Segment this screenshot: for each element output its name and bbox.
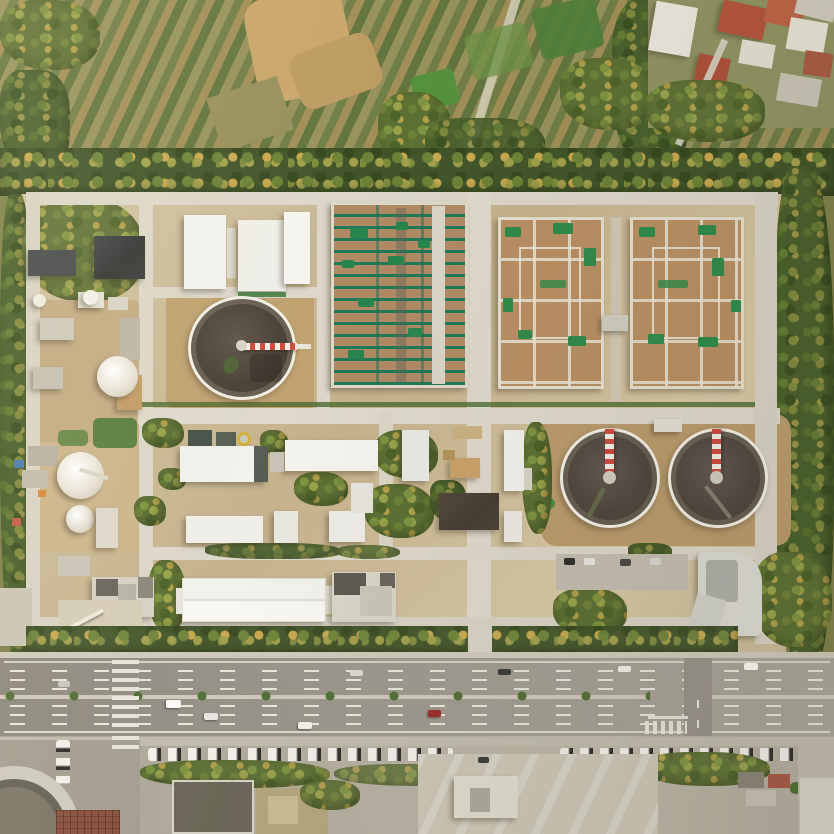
left-shed-row-b <box>22 470 48 488</box>
mw-green-2 <box>553 223 573 234</box>
basin-green-box-4 <box>408 328 422 337</box>
office-car-1 <box>564 558 575 565</box>
white-building-b <box>238 220 286 291</box>
digester-building <box>402 430 429 481</box>
white-building-5 <box>329 511 365 542</box>
office-car-2 <box>584 558 595 565</box>
parked-car-row-west <box>148 748 453 761</box>
clarifier-bridge-landing <box>295 344 311 349</box>
mid-trees-5 <box>294 472 348 506</box>
dark-roof-building-2 <box>28 250 76 276</box>
white-building-4 <box>274 511 298 543</box>
road-main-eastwest <box>138 408 780 424</box>
me-green-7 <box>731 300 741 312</box>
long-warehouse <box>182 578 326 622</box>
tan-building <box>450 458 480 478</box>
car-1 <box>166 700 181 708</box>
mid-trees-9 <box>134 496 166 526</box>
clarifier-dark-patch <box>250 354 282 382</box>
gas-dome-3 <box>66 505 94 533</box>
aeration-basin-lane <box>396 208 406 382</box>
gray-complex-d2 <box>138 577 153 598</box>
white-building-6 <box>504 430 524 491</box>
red-roof-building-south <box>56 810 120 834</box>
left-shed-a <box>40 318 74 340</box>
me-green-6 <box>658 280 688 288</box>
hedge-row-south <box>205 543 340 559</box>
white-building-7 <box>504 511 522 542</box>
tan-block-trees <box>300 780 360 810</box>
median-shrubs <box>0 691 650 701</box>
me-green-3 <box>712 258 724 276</box>
office-car-3 <box>620 559 631 566</box>
canopy-shadow-bay <box>470 788 490 812</box>
crosswalk-east <box>645 721 687 734</box>
car-7 <box>744 663 758 670</box>
clarifier-center-hub <box>236 340 247 351</box>
office-car-4 <box>650 558 661 565</box>
left-building-c <box>120 318 140 360</box>
crosswalk-west-south <box>112 736 139 752</box>
white-building-c <box>284 212 310 284</box>
basin-green-box-7 <box>396 222 408 230</box>
aeration-basin-walkway <box>432 206 445 384</box>
clarifier-scraper-bridge <box>240 343 297 350</box>
me-green-2 <box>698 225 716 235</box>
car-9 <box>350 670 363 676</box>
basin-green-box-3 <box>358 298 374 307</box>
basin-mid-connector <box>602 315 628 331</box>
me-green-5 <box>698 337 718 347</box>
median-line-east <box>712 695 834 699</box>
southeast-structure-1 <box>738 772 764 788</box>
lot-car <box>478 757 489 763</box>
trees-green-knoll <box>560 58 655 130</box>
sports-court-1 <box>188 430 212 447</box>
southeast-structure-2 <box>746 790 776 806</box>
parked-cars-vertical <box>56 740 70 784</box>
tan-building-2 <box>443 450 455 460</box>
mw-green-7 <box>540 280 566 288</box>
village-white-block-1 <box>648 1 698 58</box>
village-white-block-2 <box>786 17 829 55</box>
left-shed-b <box>33 367 63 389</box>
mw-green-1 <box>505 227 521 237</box>
aerial-photo-wastewater-plant <box>0 0 834 834</box>
basin-green-box-5 <box>348 350 364 359</box>
trees-southeast <box>752 552 832 647</box>
car-3 <box>428 710 441 717</box>
white-building-2 <box>285 440 378 471</box>
lawn-patch-1 <box>93 418 137 448</box>
gray-complex-dark <box>96 579 118 596</box>
white-building-1-dark-end <box>254 446 268 482</box>
hedge-row-south-2 <box>336 545 400 559</box>
building-334-mid <box>360 586 392 616</box>
stop-line-east <box>648 716 688 719</box>
dark-roof-building-1 <box>94 236 145 279</box>
basin-green-box-8 <box>342 260 354 268</box>
membrane-west-inner-path <box>519 247 581 339</box>
tan-block-sub <box>268 796 298 824</box>
village-red-roof-4 <box>802 50 833 78</box>
bottom-right-greenhouse <box>800 778 834 834</box>
hedge-along-main-road <box>140 402 776 407</box>
white-shed-2 <box>108 297 128 310</box>
me-green-4 <box>648 334 664 344</box>
tower-building <box>96 508 118 548</box>
shelterbelt-tree-row <box>0 148 834 196</box>
car-6 <box>618 666 631 672</box>
sports-court-2 <box>216 432 236 446</box>
crosswalk-west <box>112 660 139 732</box>
southeast-structure-red <box>768 774 790 788</box>
left-shed-c <box>58 556 90 576</box>
lawn-patch-2 <box>58 430 88 446</box>
basin-green-box-1 <box>350 228 368 238</box>
yard-clutter-orange <box>38 490 46 497</box>
mw-green-5 <box>568 336 586 346</box>
warehouse-west-cap <box>176 588 183 614</box>
road-vertical-2 <box>317 192 330 414</box>
village-trees <box>645 80 765 142</box>
left-shed-row-a <box>28 446 58 466</box>
gas-dome-1 <box>97 356 138 397</box>
yard-clutter-red <box>12 518 21 526</box>
membrane-east-inner-path <box>652 247 720 339</box>
basin-green-box-6 <box>418 240 430 248</box>
white-building-5b <box>351 483 373 513</box>
tan-structure-north <box>452 426 482 439</box>
yellow-tank-ring <box>237 432 251 446</box>
basin-gap-walkway <box>611 217 621 401</box>
skylight-grid-building <box>172 780 254 834</box>
basin-green-box-2 <box>388 256 404 265</box>
white-building-3 <box>186 516 263 543</box>
me-green-1 <box>639 227 655 237</box>
white-building-6-side <box>524 468 532 490</box>
mw-green-3 <box>584 248 596 266</box>
white-building-a <box>184 215 226 289</box>
mid-trees-6 <box>364 484 434 538</box>
white-building-a-canopy <box>227 228 236 278</box>
dark-flat-building <box>439 493 499 530</box>
car-5 <box>498 669 511 675</box>
mid-trees-1 <box>142 418 184 448</box>
yard-clutter-blue <box>14 460 24 468</box>
car-2 <box>204 713 218 720</box>
sc-west-hub <box>603 471 616 484</box>
mw-green-4 <box>518 330 532 339</box>
car-4 <box>298 722 312 729</box>
sc-east-hub <box>710 471 723 484</box>
sc-north-shed <box>654 419 682 432</box>
gray-mid-shed <box>270 452 284 472</box>
dish-tank-1 <box>33 294 46 307</box>
car-8 <box>58 681 70 687</box>
trees-top-left <box>0 0 100 70</box>
mw-green-6 <box>503 298 513 312</box>
dish-tank-2 <box>83 290 98 305</box>
